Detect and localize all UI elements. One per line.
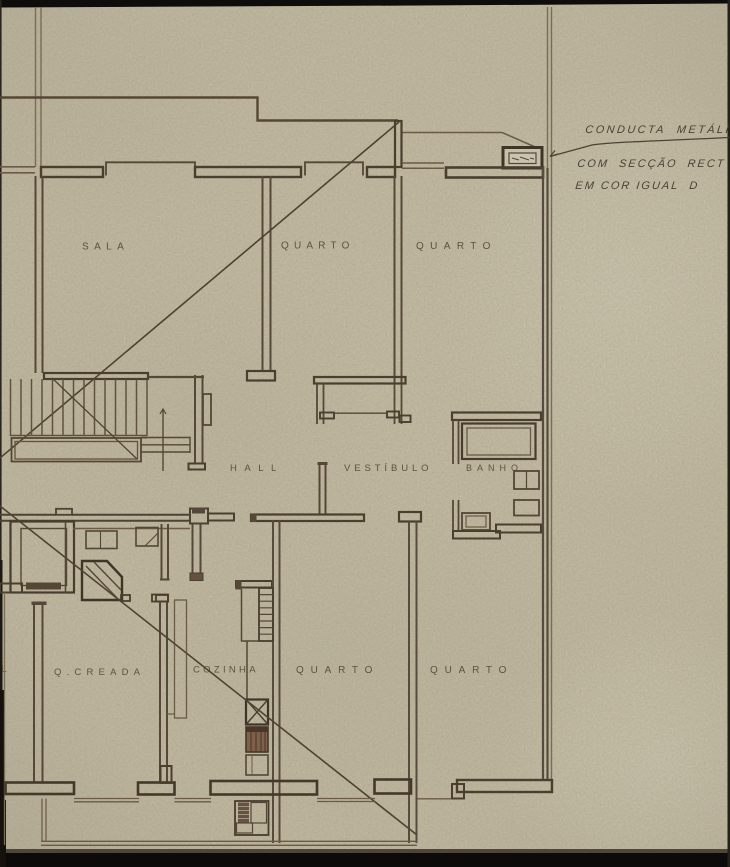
svg-text:SALA: SALA — [82, 242, 129, 253]
svg-text:QUARTO: QUARTO — [296, 665, 379, 676]
svg-text:EM COR IGUAL D: EM COR IGUAL D — [575, 180, 700, 192]
svg-text:HALL: HALL — [230, 463, 284, 474]
svg-text:CONDUCTA METÁLICA: CONDUCTA METÁLICA — [585, 123, 730, 136]
svg-text:VESTÍBULO: VESTÍBULO — [344, 463, 432, 474]
svg-text:QUARTO: QUARTO — [416, 241, 497, 252]
svg-text:Q.CREADA: Q.CREADA — [54, 667, 145, 678]
svg-text:QUARTO: QUARTO — [281, 241, 355, 252]
svg-text:QUARTO: QUARTO — [430, 665, 513, 676]
svg-text:COM SECÇÃO RECT: COM SECÇÃO RECT — [577, 157, 727, 170]
